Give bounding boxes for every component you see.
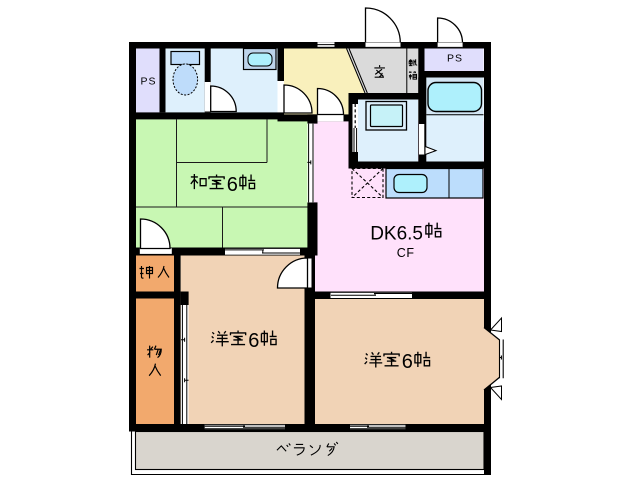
svg-text:6: 6: [227, 174, 238, 196]
svg-text:DK6.5: DK6.5: [370, 224, 423, 245]
svg-text:6: 6: [248, 330, 259, 352]
svg-text:PS: PS: [447, 52, 463, 64]
svg-text:6: 6: [402, 351, 413, 373]
svg-text:CF: CF: [397, 246, 415, 260]
svg-text:PS: PS: [141, 76, 157, 88]
